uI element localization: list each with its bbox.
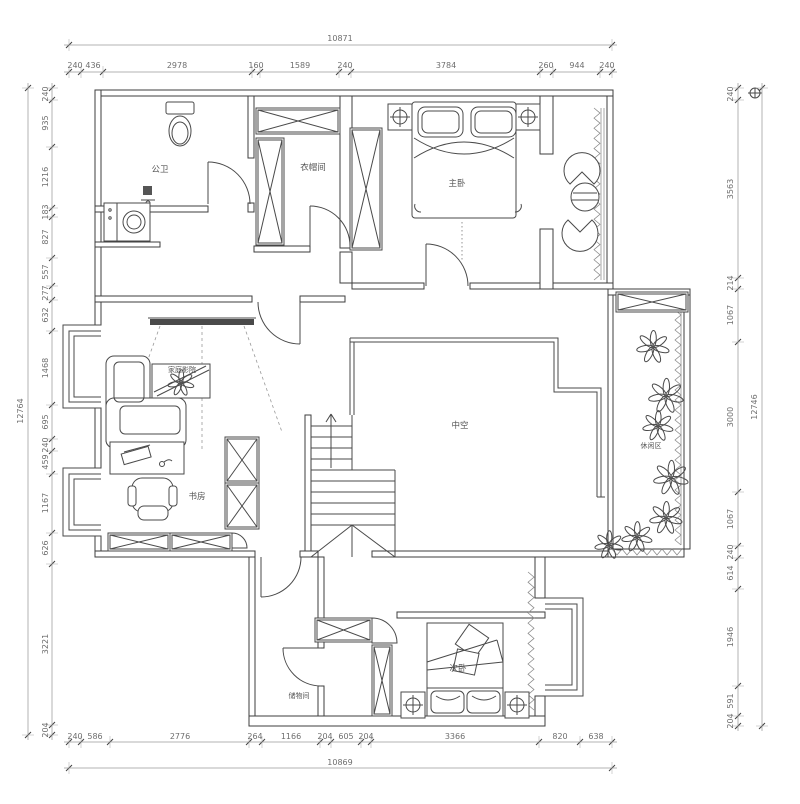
dim-left-seg-2: 1216 (41, 167, 50, 187)
dim-left-seg-14: 3221 (41, 634, 50, 654)
dim-text-top: 10871 240 436 2978 160 1589 240 3784 260… (67, 34, 614, 70)
dim-right-overall: 12746 (750, 394, 759, 419)
dim-left-seg-9: 695 (41, 414, 50, 429)
dim-bottom-seg-8: 3366 (445, 732, 465, 741)
washer-icon (104, 203, 150, 241)
dim-bottom-seg-0: 240 (67, 732, 82, 741)
dim-left-seg-6: 277 (41, 285, 50, 300)
dim-top-seg-9: 240 (599, 61, 614, 70)
dim-left-seg-1: 935 (41, 115, 50, 130)
dim-left-seg-3: 183 (41, 204, 50, 219)
dim-text-left: 12764 240 935 1216 183 827 557 277 632 1… (16, 86, 50, 737)
dim-bottom-seg-7: 204 (358, 732, 373, 741)
room-label-master-bedroom: 主卧 (448, 178, 466, 189)
room-label-void: 中空 (451, 420, 468, 431)
floor-plan-page: 公卫 衣帽间 主卧 家庭影院 书房 中空 休闲区 储物间 次卧 10871 24… (0, 0, 800, 804)
dim-bottom-seg-3: 264 (247, 732, 262, 741)
dim-right-seg-7: 614 (726, 565, 735, 580)
dim-left-seg-0: 240 (41, 86, 50, 101)
furniture-layer (63, 88, 762, 718)
projection-screen-icon (148, 318, 256, 325)
toilet-icon (166, 102, 194, 146)
room-label-bathroom: 公卫 (151, 165, 169, 175)
dim-right-seg-8: 1946 (726, 627, 735, 647)
dim-top-seg-1: 436 (85, 61, 100, 70)
dim-left-seg-5: 557 (41, 264, 50, 279)
round-table-icon (571, 183, 599, 211)
dim-right-seg-6: 240 (726, 544, 735, 559)
office-chair-icon (128, 478, 177, 520)
stairs-up-icon (311, 414, 395, 557)
dim-top-seg-0: 240 (67, 61, 82, 70)
dim-text-right: 12746 240 3563 214 1067 3000 1067 240 61… (726, 86, 759, 728)
dim-right-seg-3: 1067 (726, 305, 735, 325)
room-label-storage: 储物间 (289, 691, 310, 700)
window-hatch (528, 108, 682, 710)
room-label-leisure: 休闲区 (641, 441, 662, 450)
dim-bottom-seg-6: 605 (338, 732, 353, 741)
dim-right-seg-5: 1067 (726, 509, 735, 529)
dim-right-seg-1: 3563 (726, 179, 735, 199)
dim-top-seg-8: 944 (569, 61, 584, 70)
room-label-second-bedroom: 次卧 (449, 663, 467, 674)
dim-bottom-seg-4: 1166 (281, 732, 301, 741)
dim-top-seg-7: 260 (538, 61, 553, 70)
dim-left-seg-15: 204 (41, 722, 50, 737)
dim-left-seg-11: 459 (41, 454, 50, 469)
dim-right-seg-2: 214 (726, 275, 735, 290)
dim-top-seg-3: 160 (248, 61, 263, 70)
dim-left-seg-10: 240 (41, 437, 50, 452)
dim-left-seg-4: 827 (41, 229, 50, 244)
dim-left-seg-12: 1167 (41, 493, 50, 513)
dim-left-overall: 12764 (16, 398, 25, 423)
void-railing (350, 338, 605, 497)
dim-top-seg-2: 2978 (167, 61, 187, 70)
dim-bottom-seg-9: 820 (552, 732, 567, 741)
dim-top-seg-6: 3784 (436, 61, 456, 70)
floor-plan-drawing: 公卫 衣帽间 主卧 家庭影院 书房 中空 休闲区 储物间 次卧 10871 24… (0, 0, 800, 804)
dim-bottom-seg-1: 586 (87, 732, 102, 741)
dim-left-seg-7: 632 (41, 307, 50, 322)
dim-top-seg-5: 240 (337, 61, 352, 70)
dim-text-bottom: 10869 240 586 2776 264 1166 204 605 204 … (67, 732, 603, 767)
floor-drain-icon (141, 186, 155, 205)
room-label-study: 书房 (188, 491, 205, 502)
dim-bottom-seg-10: 638 (588, 732, 603, 741)
dim-bottom-overall: 10869 (327, 758, 352, 767)
dim-right-seg-4: 3000 (726, 407, 735, 427)
dim-bottom-seg-5: 204 (317, 732, 332, 741)
dim-left-seg-8: 1468 (41, 358, 50, 378)
double-bed-icon (412, 102, 521, 262)
dim-left-seg-13: 626 (41, 540, 50, 555)
dim-bottom-seg-2: 2776 (170, 732, 190, 741)
dim-right-seg-9: 591 (726, 693, 735, 708)
dim-top-overall: 10871 (327, 34, 352, 43)
desk-icon (110, 442, 184, 474)
door-swing-icon (208, 162, 468, 686)
room-label-cloakroom: 衣帽间 (300, 162, 326, 173)
dim-right-seg-10: 204 (726, 713, 735, 728)
dim-top-seg-4: 1589 (290, 61, 310, 70)
room-label-home-theater: 家庭影院 (168, 365, 196, 374)
dim-right-seg-0: 240 (726, 86, 735, 101)
